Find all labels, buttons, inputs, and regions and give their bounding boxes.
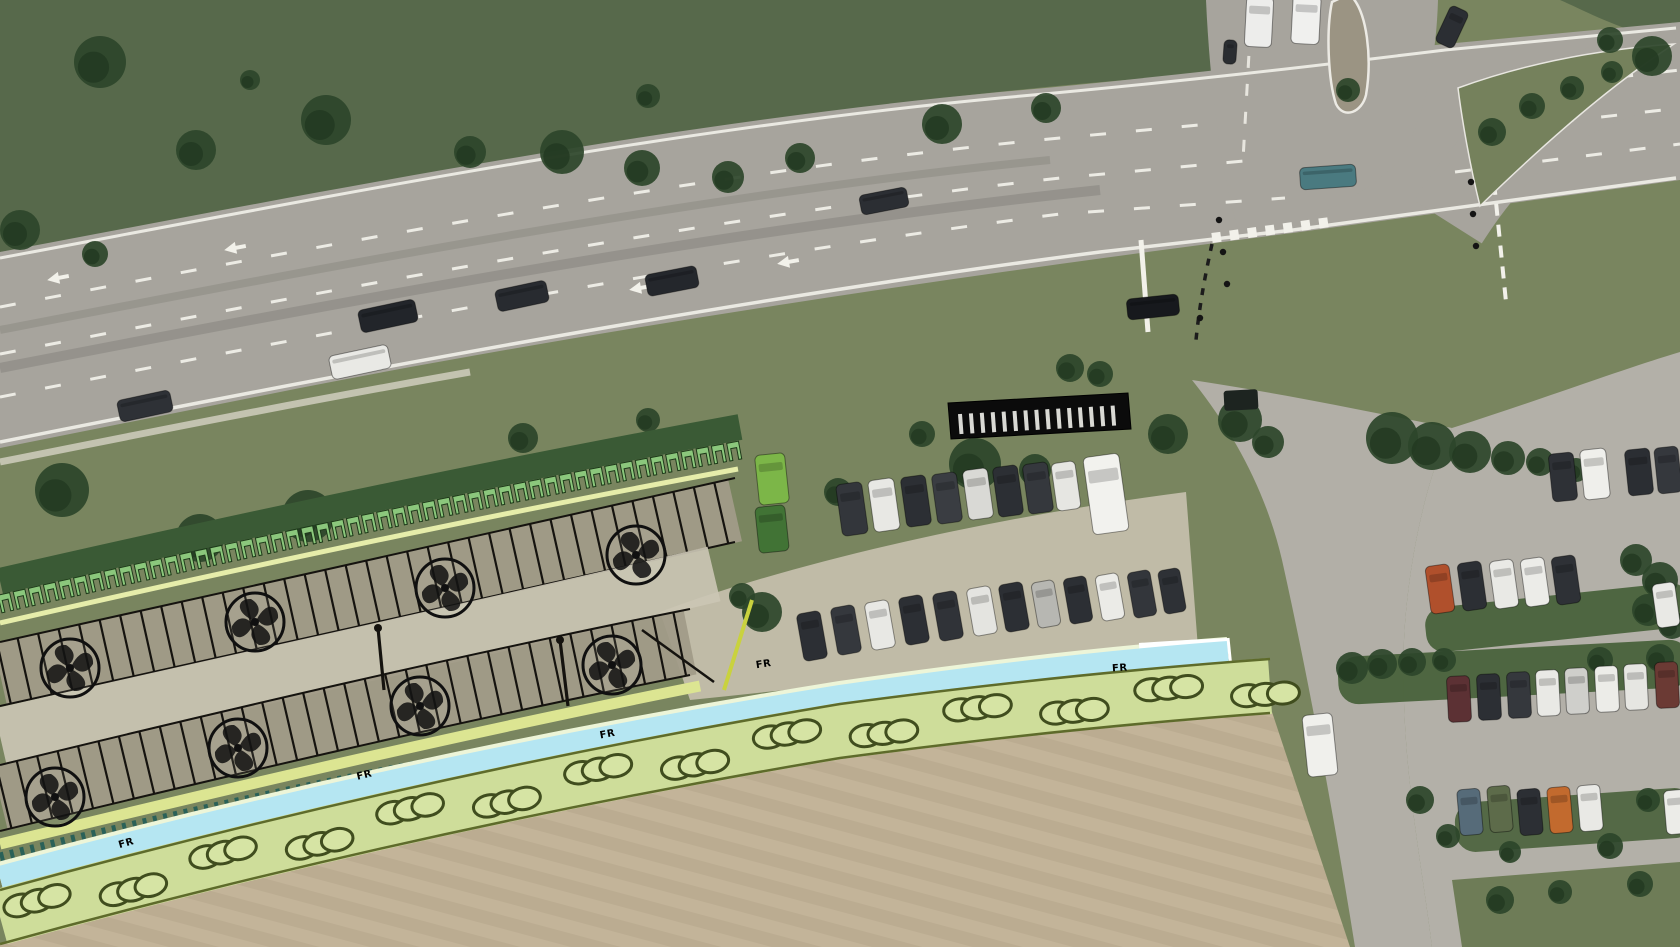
hill-tree-blob xyxy=(636,84,660,108)
car-lot-row-3 xyxy=(1446,675,1471,722)
signal-pole-dot xyxy=(1216,217,1222,223)
signal-pole-dot xyxy=(1468,179,1474,185)
hatch-bar-tick xyxy=(1047,409,1049,429)
intersection_islands-tree-blob xyxy=(1519,93,1545,119)
car-lot-row-4 xyxy=(1517,788,1544,836)
car-road xyxy=(1291,0,1321,45)
signal-pole-dot xyxy=(1220,249,1226,255)
cycle-path-label: FR xyxy=(1112,662,1128,674)
map-canvas: FRFRFRFRFR xyxy=(0,0,1680,947)
shrub-chain-symbol xyxy=(1134,674,1204,702)
car-lot-row-4 xyxy=(1577,784,1604,832)
intersection_islands-tree-blob xyxy=(1336,78,1360,102)
verge-tree-blob xyxy=(1087,361,1113,387)
hatch-bar-tick xyxy=(960,414,962,434)
plan-tree-symbol xyxy=(41,639,99,697)
hill-tree-blob xyxy=(176,130,216,170)
hatch-bar-tick xyxy=(1102,406,1104,426)
hill-tree-blob xyxy=(82,241,108,267)
verge-tree-blob xyxy=(1056,354,1084,382)
hatch-bar-tick xyxy=(993,412,995,432)
intersection_islands-tree-blob xyxy=(1601,61,1623,83)
right_lot-tree-blob xyxy=(1627,871,1653,897)
plan-tree-symbol xyxy=(416,559,474,617)
car-lot-row-3 xyxy=(1623,663,1648,710)
car-lot-row-3 xyxy=(1476,673,1501,720)
hill-tree-blob xyxy=(1031,93,1061,123)
car-lot-row-3 xyxy=(1535,669,1560,716)
bench-or-sign xyxy=(1223,389,1258,411)
hill-tree-blob xyxy=(1632,36,1672,76)
car-lot-row-1 xyxy=(1548,452,1578,502)
right_lot-tree-blob xyxy=(1491,441,1525,475)
right_lot-tree-blob xyxy=(1499,841,1521,863)
plan-tree-symbol xyxy=(583,636,641,694)
plan-tree-symbol xyxy=(607,526,665,584)
right_lot-tree-blob xyxy=(1408,422,1456,470)
intersection_islands-tree-blob xyxy=(1478,118,1506,146)
right_lot-tree-blob xyxy=(1548,880,1572,904)
signal-pole-dot xyxy=(1224,281,1230,287)
car-road xyxy=(1223,40,1238,65)
car-lot-row-3 xyxy=(1564,667,1589,714)
hatch-bar-tick xyxy=(1036,410,1038,430)
hatch-bar-tick xyxy=(1069,408,1071,428)
hill-tree-blob xyxy=(1597,27,1623,53)
verge-tree-blob xyxy=(909,421,935,447)
hatch-bar-tick xyxy=(1025,410,1027,430)
right_lot-tree-blob xyxy=(1597,833,1623,859)
aerial-map[interactable]: FRFRFRFRFR xyxy=(0,0,1680,947)
verge-tree-blob xyxy=(1252,426,1284,458)
car-road xyxy=(1244,0,1274,48)
signal-pole-dot xyxy=(1470,211,1476,217)
hatch-bar-tick xyxy=(1058,409,1060,429)
signal-pole-dot xyxy=(1473,243,1479,249)
right_lot-tree-blob xyxy=(1367,649,1397,679)
plan-tree-symbol xyxy=(391,677,449,735)
van xyxy=(1302,713,1338,778)
hatch-bar-tick xyxy=(1004,412,1006,432)
hill-tree-blob xyxy=(454,136,486,168)
lamp-post-head xyxy=(374,624,382,632)
verge-tree-blob xyxy=(1148,414,1188,454)
right_lot-tree-blob xyxy=(1486,886,1514,914)
intersection_islands-tree-blob xyxy=(1560,76,1584,100)
car-lot-row-1 xyxy=(1624,448,1654,496)
car-lot-row-4 xyxy=(1547,786,1574,834)
verge-tree-blob xyxy=(35,463,89,517)
right_lot-tree-blob xyxy=(1436,824,1460,848)
car-lot-row-1 xyxy=(1579,448,1610,500)
car-lot-row-4 xyxy=(1457,788,1484,836)
car-lot-row-1 xyxy=(1654,446,1680,494)
verge-tree-blob xyxy=(636,408,660,432)
right_lot-tree-blob xyxy=(1449,431,1491,473)
hill-tree-blob xyxy=(785,143,815,173)
right_lot-tree-blob xyxy=(1336,652,1368,684)
hatch-bar-tick xyxy=(1015,411,1017,431)
hill-tree-blob xyxy=(922,104,962,144)
signal-pole-dot xyxy=(1197,315,1203,321)
right_lot-tree-blob xyxy=(1406,786,1434,814)
plan-tree-symbol xyxy=(226,593,284,651)
plan-tree-symbol xyxy=(26,768,84,826)
right_lot-tree-blob xyxy=(1636,788,1660,812)
hatch-bar-tick xyxy=(1080,407,1082,427)
car-lot-row-3 xyxy=(1594,665,1619,712)
green-container-bottom xyxy=(755,505,790,554)
car-lot-row-3 xyxy=(1506,671,1531,718)
plan-tree-symbol xyxy=(209,719,267,777)
hatch-bar-tick xyxy=(1091,407,1093,427)
hill-tree-blob xyxy=(712,161,744,193)
hatch-bar-tick xyxy=(971,413,973,433)
right_lot-tree-blob xyxy=(1398,648,1426,676)
lamp-post-head xyxy=(556,636,564,644)
hatch-bar-tick xyxy=(1113,406,1115,426)
verge-tree-blob xyxy=(508,423,538,453)
green-container-top xyxy=(754,453,789,506)
shrub-chain-symbol xyxy=(1231,681,1300,708)
hill-tree-blob xyxy=(74,36,126,88)
hill-tree-blob xyxy=(240,70,260,90)
hill-tree-blob xyxy=(0,210,40,250)
car-lot-row-3 xyxy=(1654,661,1679,708)
car-road xyxy=(1299,164,1356,190)
hatch-bar-tick xyxy=(982,413,984,433)
hill-tree-blob xyxy=(624,150,660,186)
right_lot-tree-blob xyxy=(1432,648,1456,672)
hill-tree-blob xyxy=(540,130,584,174)
car-lot-row-4 xyxy=(1487,785,1514,833)
hill-tree-blob xyxy=(301,95,351,145)
